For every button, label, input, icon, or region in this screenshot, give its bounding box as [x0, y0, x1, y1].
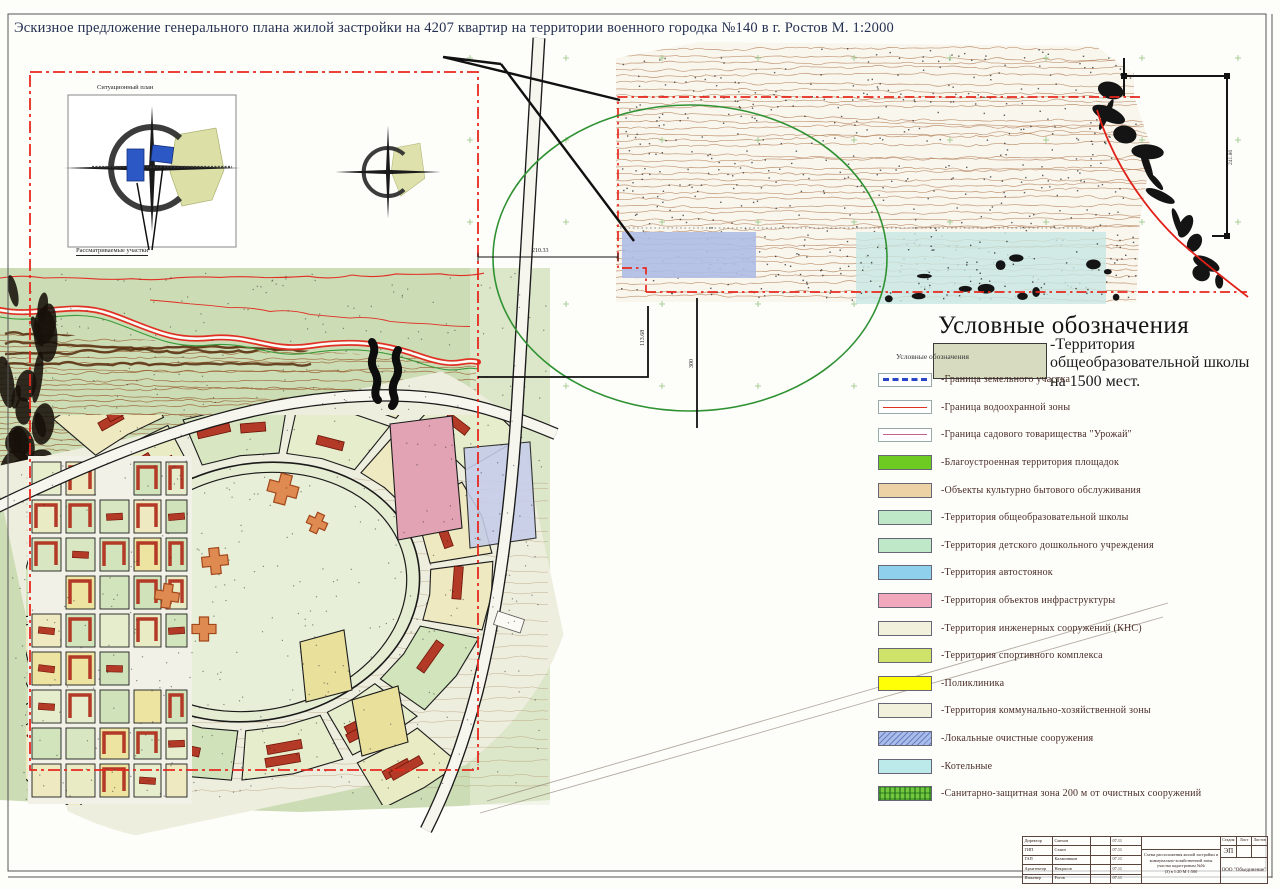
legend-swatch-fill [878, 538, 932, 553]
legend-swatch-fill [878, 786, 932, 801]
legend-swatch-line [878, 428, 932, 442]
legend-item-label: -Объекты культурно бытового обслуживания [941, 485, 1141, 496]
legend-item: -Локальные очистные сооружения [878, 725, 1274, 753]
site-marker-2 [151, 145, 174, 163]
site-marker-1 [127, 149, 144, 181]
legend-item-label: -Территория спортивного комплекса [941, 650, 1103, 661]
legend-item: -Граница садового товарищества "Урожай" [878, 421, 1274, 449]
legend-item-label: -Территория инженерных сооружений (КНС) [941, 623, 1142, 634]
dimension-line-top [478, 253, 618, 261]
dimension-value: 210.33 [532, 248, 549, 254]
legend-item: -Благоустроенная территория площадок [878, 449, 1274, 477]
boiler-zone-area [856, 232, 1106, 304]
legend-item-label: -Граница земельного участка [941, 374, 1070, 385]
legend-item: -Территория автостоянок [878, 559, 1274, 587]
legend-swatch-fill [878, 621, 932, 636]
dimension-value: 113.68 [640, 330, 646, 346]
residential-blocks-grid [28, 456, 192, 804]
legend-swatch-fill [878, 759, 932, 774]
title-block-stage: СтадияЛистЛистов ЭП ООО "Объединение" [1221, 837, 1267, 883]
dimension-value: 241.86 [1228, 150, 1234, 165]
title-block-row: ИнженерРогов07.11 [1023, 875, 1141, 883]
title-block-subject: Схема расположения жилой застройки и ком… [1142, 837, 1221, 883]
legend-item-label: -Котельные [941, 761, 992, 772]
title-block-row: ГИПСтаин07.11 [1023, 846, 1141, 855]
legend-item-label: -Территория коммунально-хозяйственной зо… [941, 705, 1151, 716]
legend-swatch-fill [878, 703, 932, 718]
legend-item: -Территория объектов инфраструктуры [878, 587, 1274, 615]
legend-item-label: -Территория общеобразовательной школы [941, 512, 1129, 523]
legend-item-label: -Благоустроенная территория площадок [941, 457, 1119, 468]
legend-item: -Территория спортивного комплекса [878, 642, 1274, 670]
legend-item-label: -Локальные очистные сооружения [941, 733, 1093, 744]
legend-item: -Граница земельного участка [878, 366, 1274, 394]
legend-swatch-fill [878, 676, 932, 691]
title-block: ДиректорСмехов07.11 ГИПСтаин07.11 ГАПКал… [1022, 836, 1268, 884]
legend-swatch-fill [878, 510, 932, 525]
situational-plan-title: Ситуационный план [97, 84, 153, 91]
sheet-title: Эскизное предложение генерального плана … [14, 20, 894, 37]
legend-item: -Территория инженерных сооружений (КНС) [878, 614, 1274, 642]
legend-item-label: -Граница садового товарищества "Урожай" [941, 429, 1132, 440]
legend-item-label: -Поликлиника [941, 678, 1004, 689]
legend-swatch-fill [878, 648, 932, 663]
topographic-survey-map [616, 42, 1248, 304]
legend-swatch-fill [878, 455, 932, 470]
legend: -Граница земельного участка -Граница вод… [878, 366, 1274, 808]
situational-plan [64, 95, 441, 250]
title-block-row: ГАПКалашников07.11 [1023, 856, 1141, 865]
company-name: ООО "Объединение" [1221, 858, 1267, 883]
legend-item-label: -Территория детского дошкольного учрежде… [941, 540, 1154, 551]
legend-item-label: -Санитарно-защитная зона 200 м от очистн… [941, 788, 1201, 799]
legend-item-label: -Территория автостоянок [941, 567, 1053, 578]
legend-swatch-fill [878, 593, 932, 608]
legend-swatch-line [878, 400, 932, 414]
title-block-row: АрхитекторНекрасов07.11 [1023, 865, 1141, 874]
legend-item: -Поликлиника [878, 670, 1274, 698]
legend-item: -Котельные [878, 752, 1274, 780]
title-block-row: ДиректорСмехов07.11 [1023, 837, 1141, 846]
legend-item: -Санитарно-защитная зона 200 м от очистн… [878, 780, 1274, 808]
legend-swatch-line [878, 373, 932, 387]
title-block-signatures: ДиректорСмехов07.11 ГИПСтаин07.11 ГАПКал… [1023, 837, 1142, 883]
legend-swatch-fill [878, 483, 932, 498]
legend-note: Условные обозначения [896, 352, 969, 361]
compass-icon [335, 126, 441, 219]
dimension-value: 300 [689, 359, 695, 368]
legend-item-label: -Граница водоохранной зоны [941, 402, 1070, 413]
legend-item: -Граница водоохранной зоны [878, 394, 1274, 422]
legend-swatch-fill [878, 731, 932, 746]
legend-swatch-fill [878, 565, 932, 580]
legend-item: -Территория общеобразовательной школы [878, 504, 1274, 532]
legend-item-label: -Территория объектов инфраструктуры [941, 595, 1115, 606]
treatment-facility-area [622, 232, 756, 278]
legend-item: -Территория коммунально-хозяйственной зо… [878, 697, 1274, 725]
legend-item: -Территория детского дошкольного учрежде… [878, 532, 1274, 560]
school-label-line: -Территория [1050, 336, 1249, 354]
situational-plan-caption: Рассматриваемые участки [76, 247, 148, 256]
legend-item: -Объекты культурно бытового обслуживания [878, 476, 1274, 504]
